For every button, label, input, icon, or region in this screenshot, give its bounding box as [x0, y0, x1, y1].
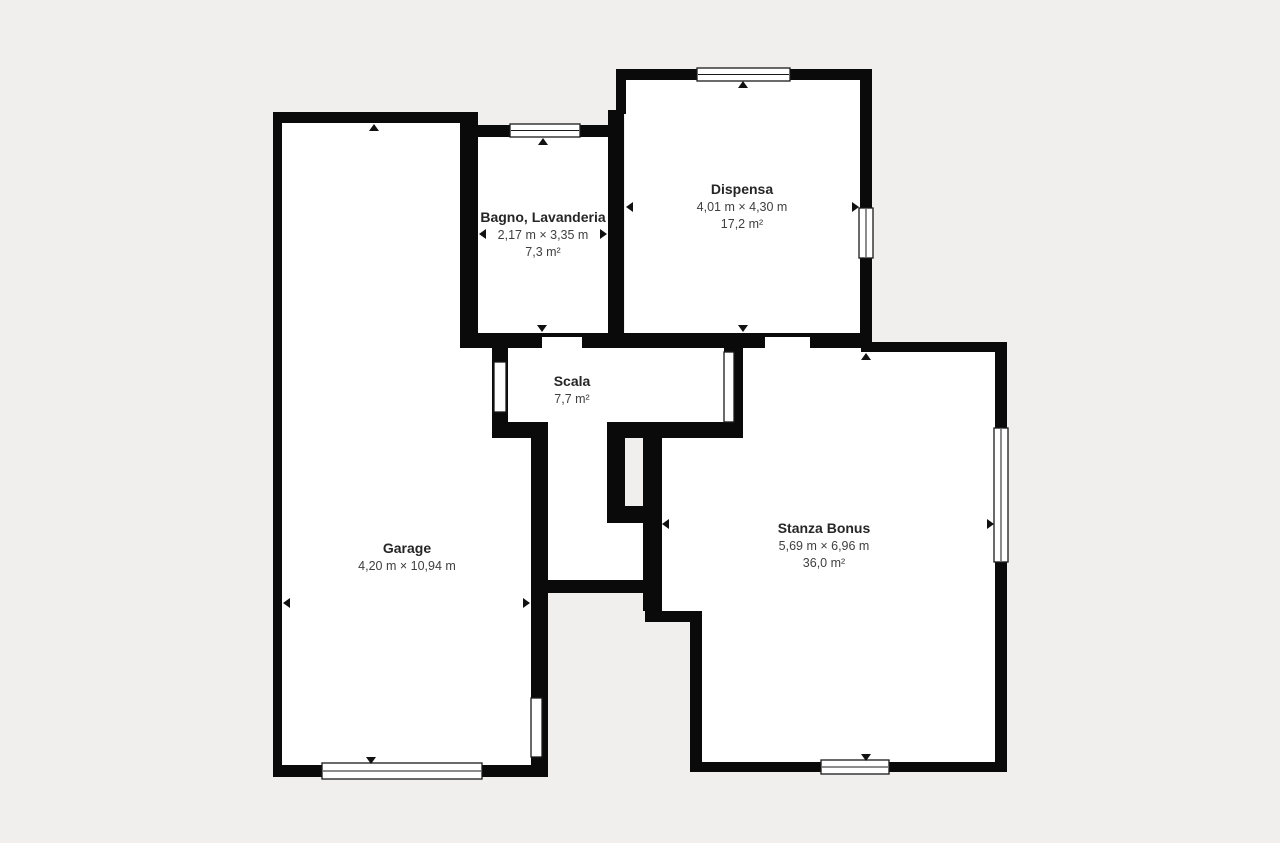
stanza-top-wall [861, 342, 1007, 352]
scala-bottom-wall-right [607, 422, 743, 438]
garage-top-wall [273, 112, 470, 123]
room-area-stanza-bonus: 36,0 m² [803, 556, 845, 570]
room-name-bagno: Bagno, Lavanderia [480, 209, 605, 225]
room-dims-bagno: 2,17 m × 3,35 m [498, 228, 589, 242]
garage-right-window [531, 698, 542, 757]
room-dims-dispensa: 4,01 m × 4,30 m [697, 200, 788, 214]
floorplan-page: Bagno, Lavanderia2,17 m × 3,35 m7,3 m²Di… [0, 0, 1280, 843]
room-dims-stanza-bonus: 5,69 m × 6,96 m [779, 539, 870, 553]
room-area-dispensa: 17,2 m² [721, 217, 763, 231]
stairwell-bottom-wall [607, 506, 662, 523]
room-name-scala: Scala [554, 373, 591, 389]
bagno-dispensa-wall [608, 110, 624, 348]
room-name-dispensa: Dispensa [711, 181, 773, 197]
scala-door [724, 352, 734, 422]
dispensa-door-gap [765, 337, 810, 348]
room-area-bagno: 7,3 m² [525, 245, 560, 259]
room-name-stanza-bonus: Stanza Bonus [778, 520, 871, 536]
floorplan-svg: Bagno, Lavanderia2,17 m × 3,35 m7,3 m²Di… [0, 0, 1280, 843]
room-name-garage: Garage [383, 540, 431, 556]
room-area-scala: 7,7 m² [554, 392, 589, 406]
room-dims-garage: 4,20 m × 10,94 m [358, 559, 456, 573]
corridor-bottom-wall [531, 580, 661, 593]
garage-left-wall [273, 112, 282, 777]
stanza-left-lower-wall [690, 611, 702, 772]
scala-left-window [494, 362, 506, 412]
bagno-left-wall [460, 112, 478, 348]
step-wall [645, 611, 702, 622]
bagno-door-gap [542, 337, 582, 348]
